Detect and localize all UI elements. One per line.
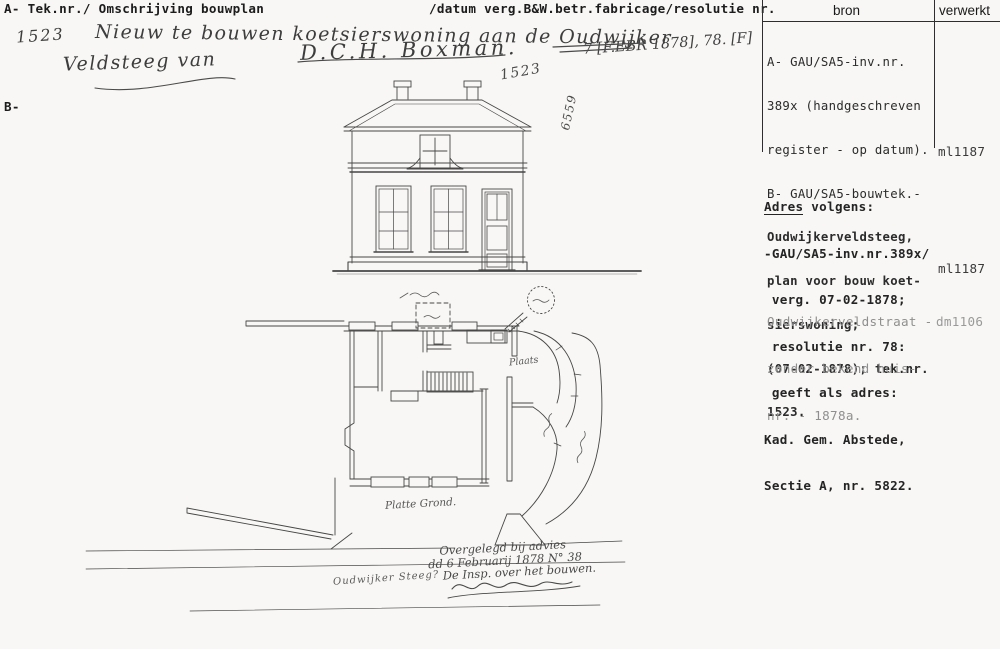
house-elevation-drawing (333, 81, 641, 274)
plan-well-circle (528, 287, 555, 314)
plan-dashed-annex (416, 303, 450, 328)
illegible-label-squiggles (400, 292, 586, 463)
plan-front-windows (371, 477, 457, 487)
elevation-door (479, 189, 515, 270)
archive-document-scan: { "colors": { "paper": "#f8f7f5", "ink":… (0, 0, 1000, 649)
plan-north-windows (349, 322, 477, 330)
signature-handwriting (448, 582, 580, 598)
plan-curved-lane (495, 331, 602, 545)
plan-staircase (427, 372, 473, 392)
bouwplan-drawing (0, 0, 1000, 649)
elevation-window-right (429, 186, 468, 252)
floor-plan-drawing (187, 287, 602, 550)
road-lines (86, 541, 625, 611)
handwriting-flourishes (95, 43, 645, 90)
elevation-window-left (374, 186, 413, 252)
dormer-window (407, 135, 463, 169)
